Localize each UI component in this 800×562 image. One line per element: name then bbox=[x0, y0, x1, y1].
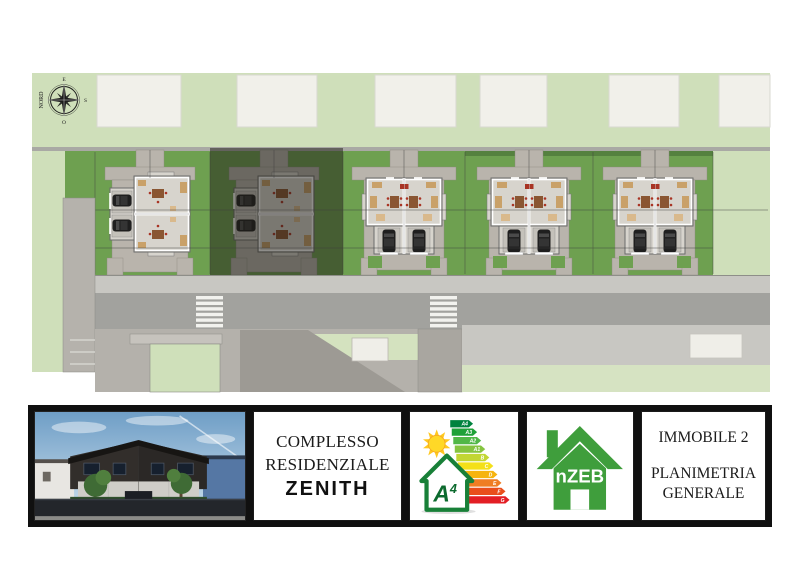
sheet-drawing-label-2: GENERALE bbox=[663, 484, 745, 504]
plan-sheet: E S O NORD bbox=[0, 0, 800, 562]
project-name-box: COMPLESSO RESIDENZIALE ZENITH bbox=[253, 411, 402, 521]
site-plan-drawing: E S O NORD bbox=[0, 0, 800, 400]
svg-text:A3: A3 bbox=[465, 430, 473, 436]
svg-text:A1: A1 bbox=[473, 447, 481, 453]
project-line-1: COMPLESSO bbox=[276, 431, 379, 453]
project-name: ZENITH bbox=[285, 478, 369, 501]
hedge-strip bbox=[465, 151, 713, 156]
sidewalk bbox=[65, 275, 770, 293]
project-line-2: RESIDENZIALE bbox=[265, 454, 389, 476]
compass-north-label: NORD bbox=[39, 91, 45, 109]
title-block: COMPLESSO RESIDENZIALE ZENITH bbox=[28, 405, 772, 527]
render-photo-box bbox=[34, 411, 246, 521]
energy-class-icon: A4 A3 A2 A1 B C D E bbox=[413, 415, 515, 517]
svg-text:B: B bbox=[481, 456, 485, 462]
nzeb-door bbox=[571, 490, 590, 510]
nzeb-house-icon: nZEB bbox=[530, 415, 630, 517]
svg-text:A4: A4 bbox=[461, 422, 469, 428]
compass-south-label: S bbox=[84, 98, 87, 104]
svg-text:A2: A2 bbox=[469, 439, 477, 445]
svg-text:D: D bbox=[489, 473, 493, 479]
building-render-image bbox=[35, 412, 245, 520]
sheet-property-label: IMMOBILE 2 bbox=[659, 428, 749, 448]
compass-west-label: O bbox=[62, 120, 66, 126]
nzeb-label: nZEB bbox=[556, 466, 605, 487]
svg-text:G: G bbox=[501, 498, 505, 504]
nzeb-box: nZEB bbox=[526, 411, 634, 521]
lot-2-highlight-overlay bbox=[210, 148, 343, 276]
road bbox=[65, 293, 770, 329]
svg-text:C: C bbox=[485, 464, 489, 470]
sheet-drawing-label-1: PLANIMETRIA bbox=[651, 464, 756, 484]
sheet-info-box: IMMOBILE 2 PLANIMETRIA GENERALE bbox=[641, 411, 766, 521]
energy-class-box: A4 A3 A2 A1 B C D E bbox=[409, 411, 519, 521]
